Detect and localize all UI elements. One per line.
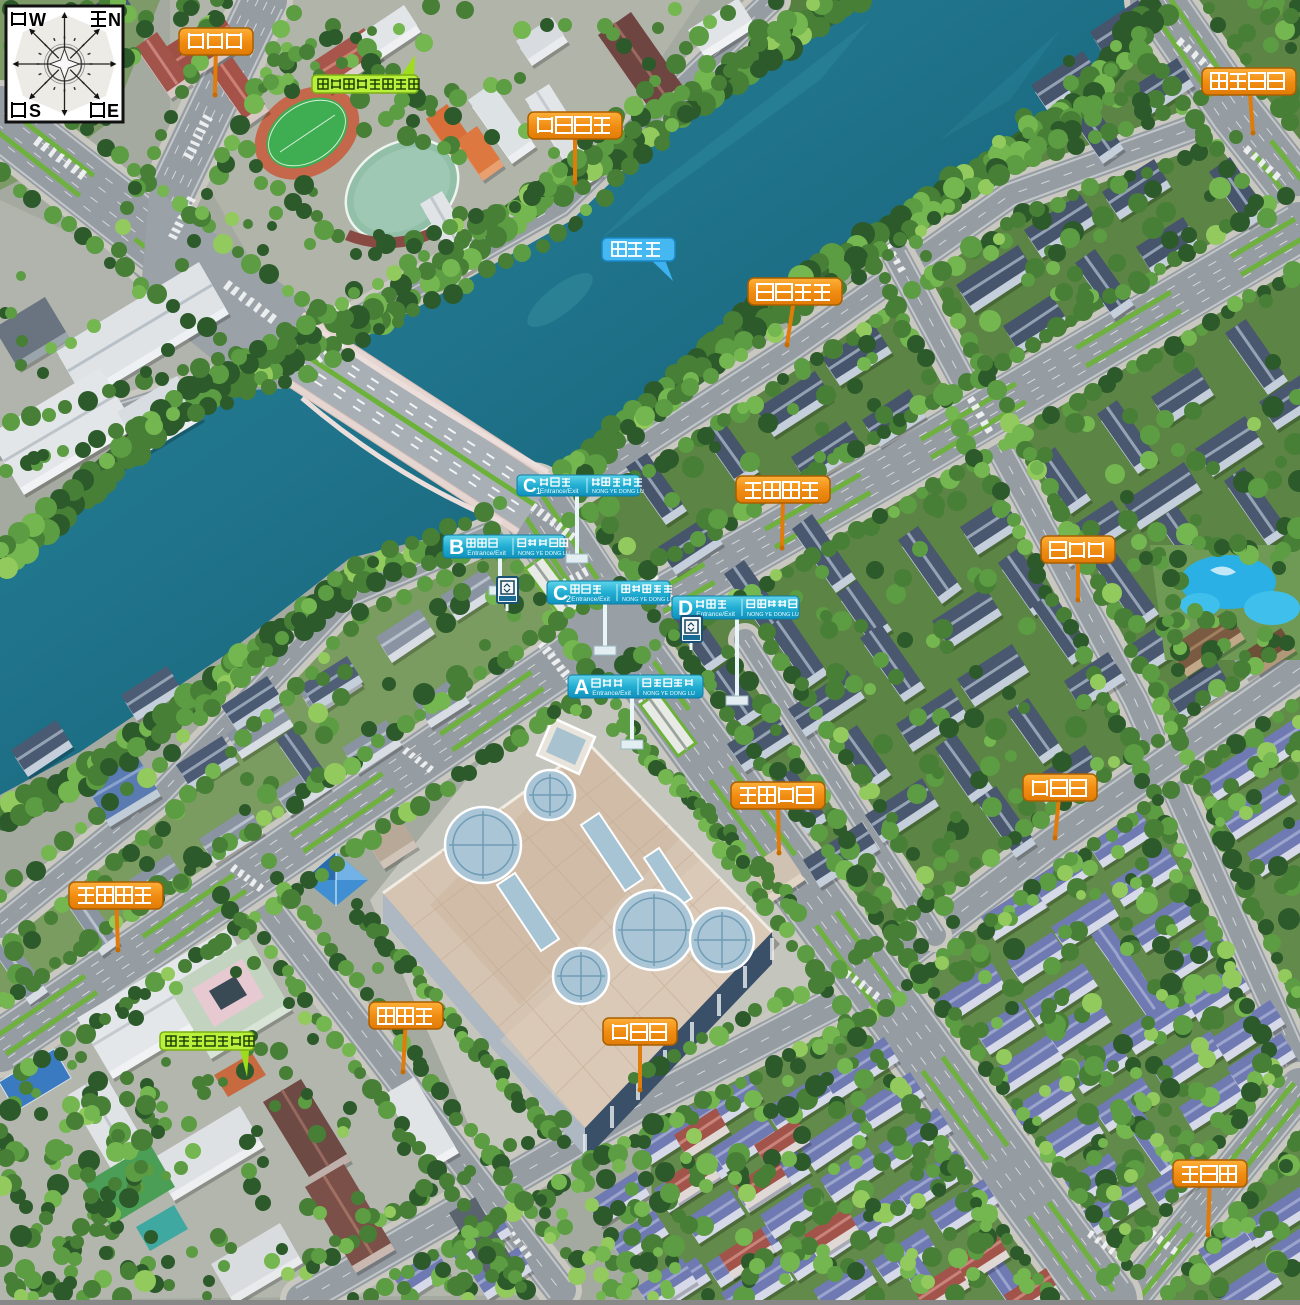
svg-text:1: 1 — [536, 486, 541, 496]
svg-text:N: N — [108, 10, 121, 30]
svg-text:Entrance/Exit: Entrance/Exit — [592, 690, 631, 697]
svg-text:A: A — [574, 676, 589, 699]
svg-text:2: 2 — [566, 594, 571, 604]
svg-text:Entrance/Exit: Entrance/Exit — [571, 596, 610, 603]
svg-text:Entrance/Exit: Entrance/Exit — [540, 488, 579, 495]
svg-text:W: W — [29, 10, 46, 30]
svg-text:C: C — [523, 476, 537, 497]
svg-text:S: S — [29, 101, 41, 121]
svg-text:NONG YE DONG LU: NONG YE DONG LU — [518, 551, 570, 557]
svg-text:NONG YE DONG LU: NONG YE DONG LU — [622, 597, 674, 603]
svg-text:B: B — [449, 536, 464, 559]
svg-text:NONG YE DONG LU: NONG YE DONG LU — [643, 691, 695, 697]
svg-text:NONG YE DONG LU: NONG YE DONG LU — [747, 612, 799, 618]
svg-text:Entrance/Exit: Entrance/Exit — [467, 550, 506, 557]
svg-text:E: E — [107, 101, 119, 121]
svg-text:NONG YE DONG LU: NONG YE DONG LU — [592, 489, 644, 495]
